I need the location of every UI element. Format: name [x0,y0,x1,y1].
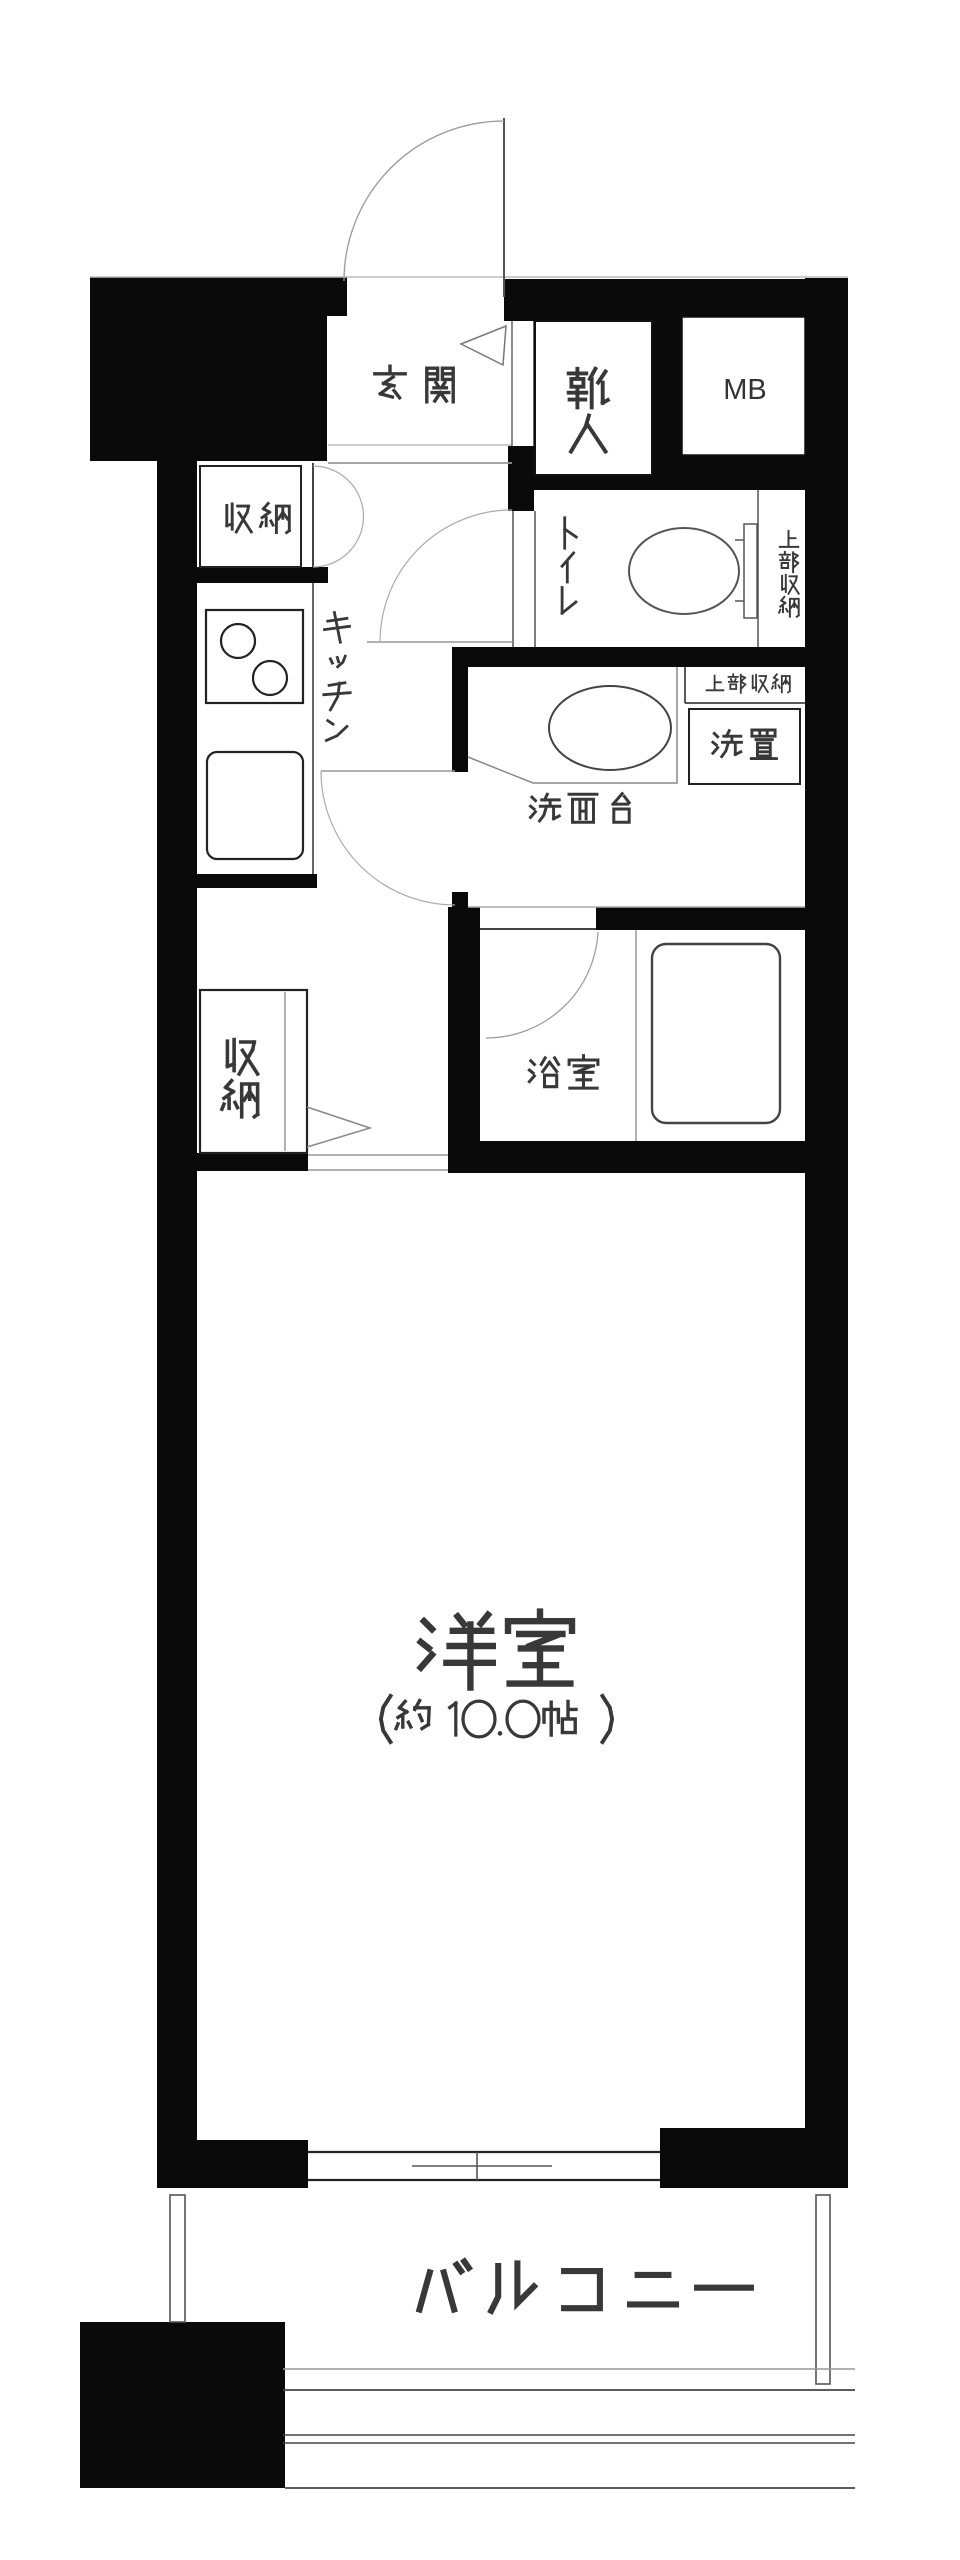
svg-text:MB: MB [723,374,767,406]
